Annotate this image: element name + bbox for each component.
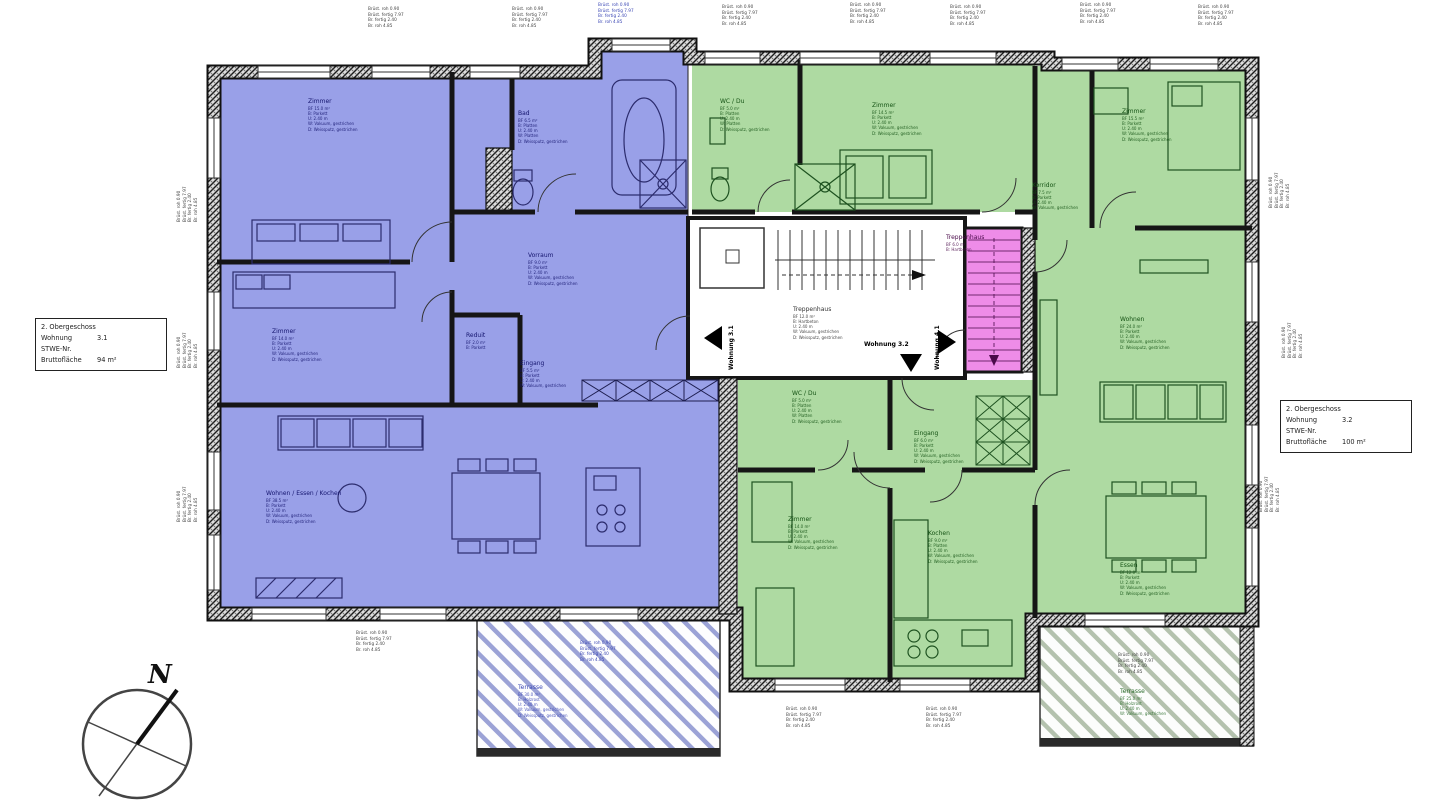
terrace-blue-area: [477, 616, 720, 756]
apartment-3-1-fill: [217, 46, 722, 612]
apartment-3-2-fill-top: [692, 60, 1035, 212]
terrace-green-area: [1040, 624, 1254, 746]
compass-icon: [83, 690, 191, 798]
apartment-3-2-fill-lower: [738, 380, 1035, 682]
floorplan-drawing: [0, 0, 1440, 810]
floorplan-canvas: 2. Obergeschoss Wohnung3.1 STWE-Nr. Brut…: [0, 0, 1440, 810]
apartment-3-2-fill-right: [1035, 66, 1250, 618]
